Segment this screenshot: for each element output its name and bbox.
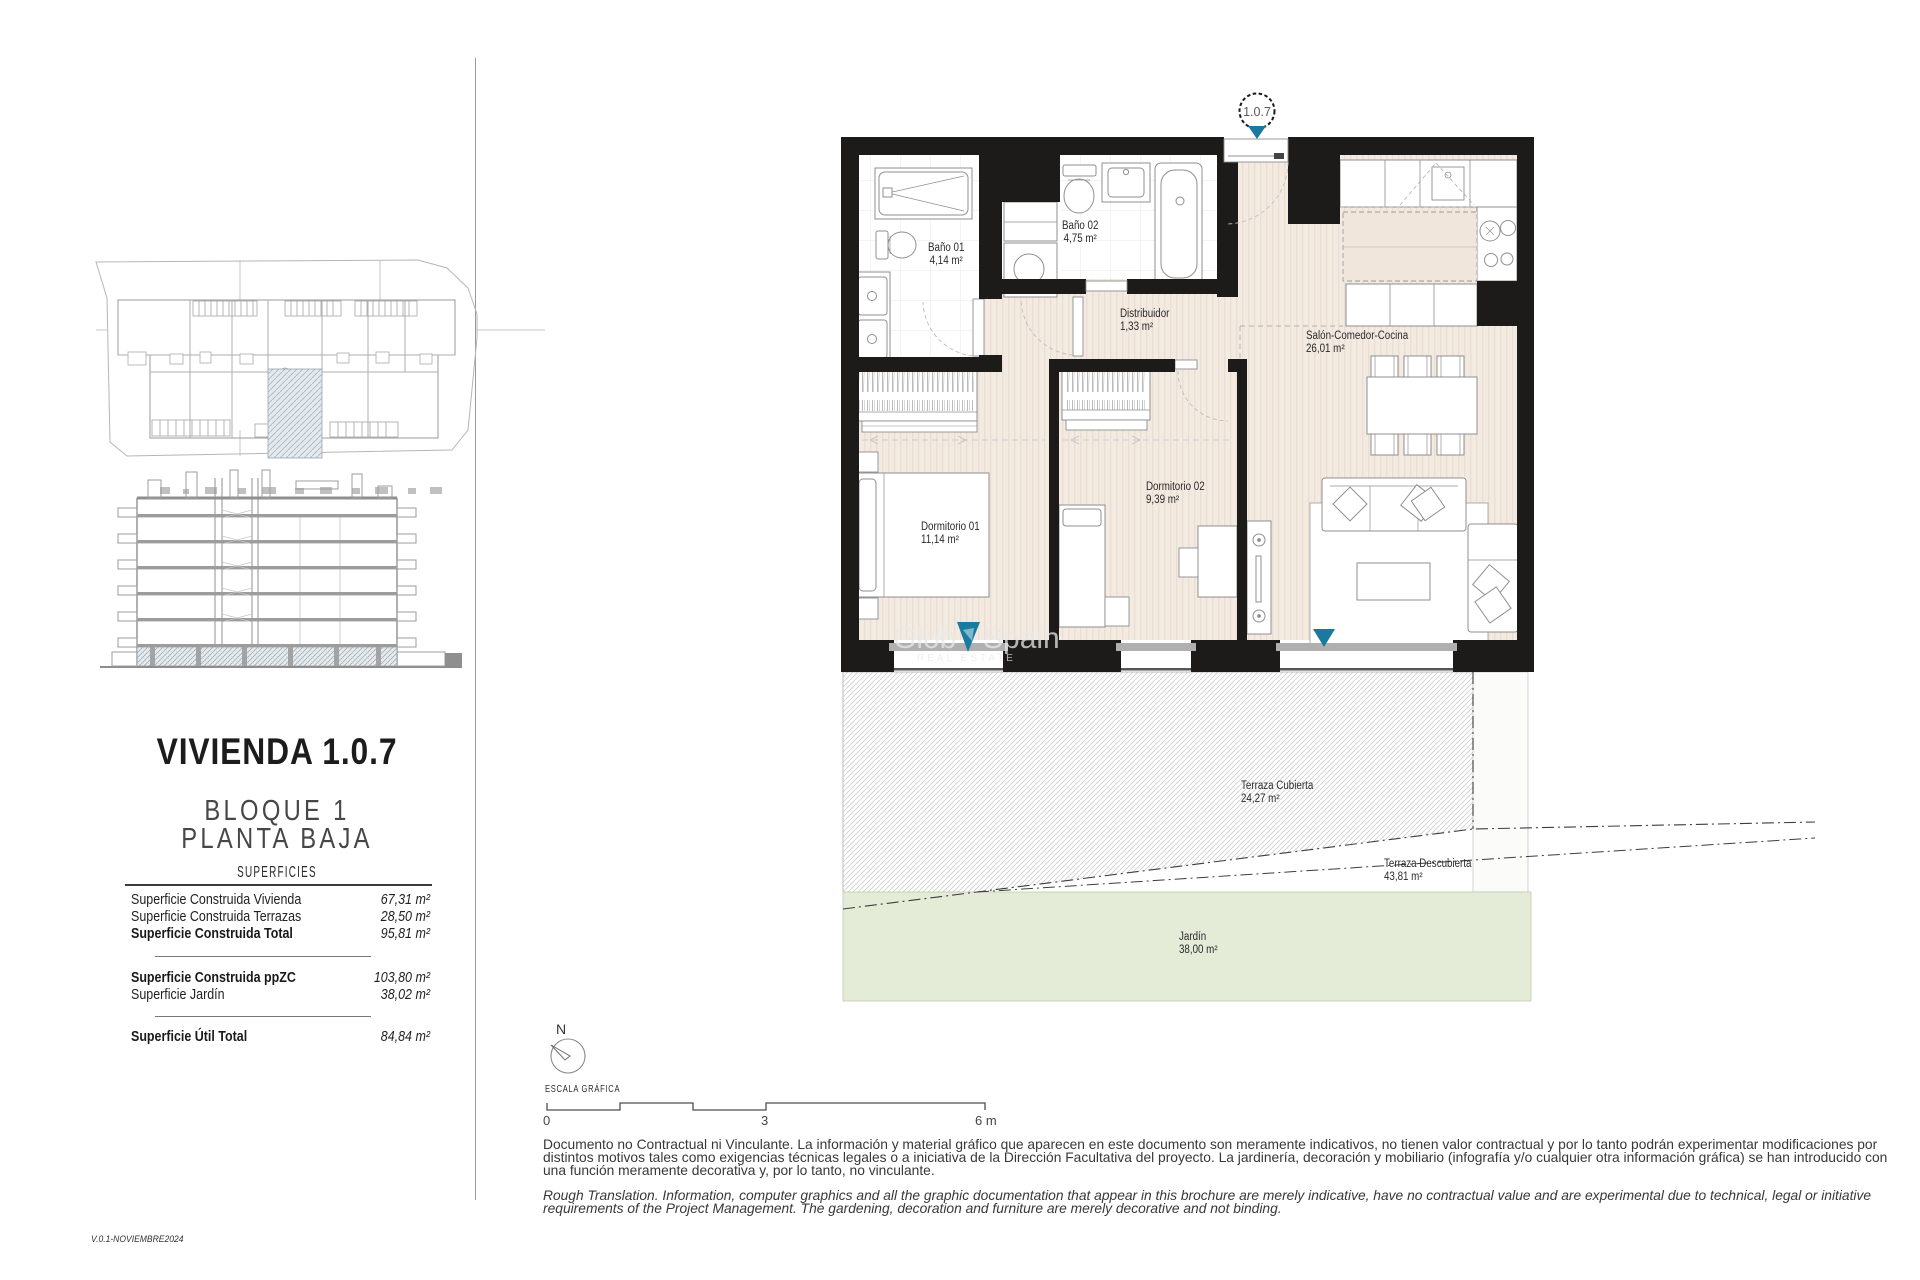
svg-text:1.0.7: 1.0.7 bbox=[1243, 105, 1271, 119]
svg-text:Glob: Glob bbox=[893, 622, 956, 655]
svg-text:Spain: Spain bbox=[983, 622, 1060, 655]
svg-text:REAL ESTATE: REAL ESTATE bbox=[917, 653, 1016, 664]
